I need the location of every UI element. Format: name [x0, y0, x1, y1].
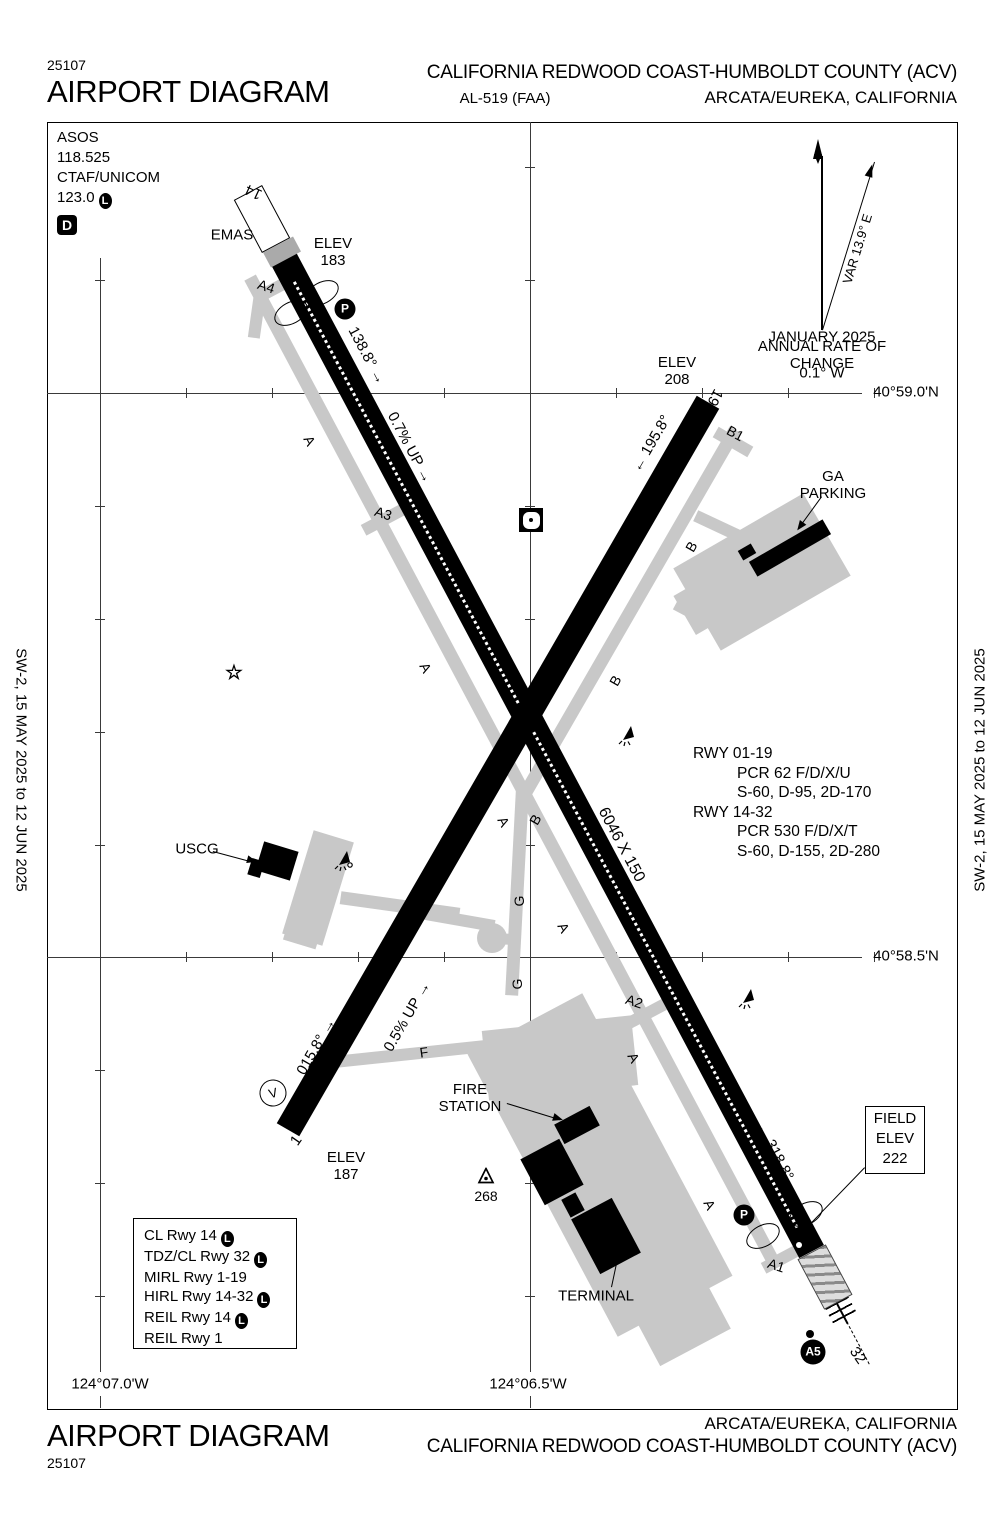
runway-data-line: RWY 14-32: [693, 803, 880, 823]
left-margin-edition: SW-2, 15 MAY 2025 to 12 JUN 2025: [13, 648, 30, 891]
ctaf-label: CTAF/UNICOM: [57, 168, 160, 188]
true-north-line: [821, 156, 823, 330]
graticule-tick: [358, 952, 359, 962]
runway-data-line: S-60, D-155, 2D-280: [693, 842, 880, 862]
graticule-tick: [95, 1296, 105, 1297]
ctaf-frequency: 123.0L: [57, 188, 160, 209]
fire-station-label: FIRE STATION: [439, 1082, 502, 1116]
airport-diagram-page: 25107 AIRPORT DIAGRAM CALIFORNIA REDWOOD…: [0, 0, 1000, 1533]
chart-number-top: 25107: [47, 57, 86, 73]
lighting-icon: L: [99, 193, 112, 209]
windsock-icon: [333, 849, 355, 873]
graticule-tick: [95, 845, 105, 846]
lighting-legend-box: CL Rwy 14LTDZ/CL Rwy 32LMIRL Rwy 1-19HIR…: [133, 1218, 297, 1349]
graticule-tick: [702, 388, 703, 398]
graticule-tick: [788, 388, 789, 398]
graticule-tick: [186, 952, 187, 962]
graticule-tick: [272, 952, 273, 962]
longitude-07: 124°07.0'W: [71, 1377, 148, 1394]
legend-line: CL Rwy 14L: [144, 1226, 296, 1247]
right-margin-edition: SW-2, 15 MAY 2025 to 12 JUN 2025: [972, 648, 989, 891]
airport-beacon-icon: [519, 508, 543, 532]
graticule-tick: [95, 506, 105, 507]
a5-holding-icon: A5: [801, 1340, 826, 1365]
taxiway-label-g: G: [510, 979, 526, 990]
emas-label: EMAS: [211, 228, 254, 245]
magvar-rate: 0.1° W: [799, 366, 844, 383]
obstruction-icon: [476, 1168, 496, 1185]
beacon-star-icon: ☆: [225, 662, 243, 684]
legend-line: HIRL Rwy 14-32L: [144, 1287, 296, 1308]
chart-number-bottom: 25107: [47, 1455, 86, 1471]
city-header: ARCATA/EUREKA, CALIFORNIA: [657, 88, 957, 108]
ga-parking-label: GA PARKING: [800, 469, 866, 503]
graticule-tick: [788, 952, 789, 962]
graticule-tick: [95, 619, 105, 620]
graticule-tick: [186, 388, 187, 398]
runway-data-line: PCR 530 F/D/X/T: [693, 822, 880, 842]
field-elev-box: FIELD ELEV 222: [865, 1106, 925, 1174]
windsock-icon: [737, 987, 759, 1011]
longitude-065: 124°06.5'W: [489, 1377, 566, 1394]
longitude-tick-bottom-center: [530, 1396, 531, 1408]
graticule-tick: [525, 506, 535, 507]
terminal-label: TERMINAL: [558, 1289, 634, 1306]
latitude-585: 40°58.5'N: [873, 949, 939, 966]
field-elev-value: 222: [866, 1149, 924, 1169]
graticule-tick: [272, 388, 273, 398]
beacon-inner: [523, 512, 540, 529]
windsock-icon: [617, 724, 639, 748]
class-d-airspace-badge: D: [57, 215, 77, 235]
lighting-icon: L: [221, 1231, 234, 1247]
latitude-59: 40°59.0'N: [873, 385, 939, 402]
procedure-id: AL-519 (FAA): [420, 90, 590, 107]
graticule-tick: [525, 1296, 535, 1297]
legend-line: MIRL Rwy 1-19: [144, 1268, 296, 1287]
asos-frequency: 118.525: [57, 148, 160, 168]
runway-data-block: RWY 01-19PCR 62 F/D/X/US-60, D-95, 2D-17…: [693, 744, 880, 861]
runway-data-line: S-60, D-95, 2D-170: [693, 783, 880, 803]
obstruction-height: 268: [474, 1189, 497, 1205]
helipad-p-icon: P: [734, 1205, 755, 1226]
graticule-tick: [95, 1070, 105, 1071]
lighting-icon: L: [257, 1292, 270, 1308]
graticule-tick: [525, 167, 535, 168]
legend-line: TDZ/CL Rwy 32L: [144, 1247, 296, 1268]
legend-line: REIL Rwy 1: [144, 1329, 296, 1348]
airport-name-header: CALIFORNIA REDWOOD COAST-HUMBOLDT COUNTY…: [355, 62, 957, 84]
graticule-tick: [616, 388, 617, 398]
graticule-tick: [95, 280, 105, 281]
latitude-line-40585: [47, 957, 862, 958]
graticule-tick: [525, 619, 535, 620]
page-title: AIRPORT DIAGRAM: [47, 74, 329, 110]
graticule-tick: [444, 952, 445, 962]
lighting-icon: L: [254, 1252, 267, 1268]
longitude-tick-bottom-left: [100, 1396, 101, 1408]
comm-info-block: ASOS 118.525 CTAF/UNICOM 123.0L D: [57, 128, 160, 235]
longitude-line-124-07: [100, 258, 101, 1372]
beacon-dot: [529, 518, 533, 522]
graticule-tick: [525, 845, 535, 846]
field-elev-line1: FIELD: [866, 1109, 924, 1129]
graticule-tick: [702, 952, 703, 962]
rwy14-elev: ELEV 183: [314, 236, 352, 270]
field-elev-line2: ELEV: [866, 1129, 924, 1149]
lighting-icon: L: [235, 1313, 248, 1329]
footer-title: AIRPORT DIAGRAM: [47, 1418, 329, 1454]
rwy19-elev: ELEV 208: [658, 355, 696, 389]
rwy1-elev: ELEV 187: [327, 1150, 365, 1184]
taxiway-label-g: G: [512, 896, 528, 907]
city-footer: ARCATA/EUREKA, CALIFORNIA: [557, 1414, 957, 1434]
a5-dot-icon: [806, 1330, 814, 1338]
airport-name-footer: CALIFORNIA REDWOOD COAST-HUMBOLDT COUNTY…: [355, 1436, 957, 1458]
legend-line: REIL Rwy 14L: [144, 1308, 296, 1329]
runway-data-line: PCR 62 F/D/X/U: [693, 764, 880, 784]
graticule-tick: [95, 1183, 105, 1184]
graticule-tick: [444, 388, 445, 398]
runway-data-line: RWY 01-19: [693, 744, 880, 764]
helipad-p-icon: P: [335, 299, 356, 320]
asos-label: ASOS: [57, 128, 160, 148]
graticule-tick: [525, 280, 535, 281]
latitude-line-4059: [47, 393, 862, 394]
graticule-tick: [95, 732, 105, 733]
